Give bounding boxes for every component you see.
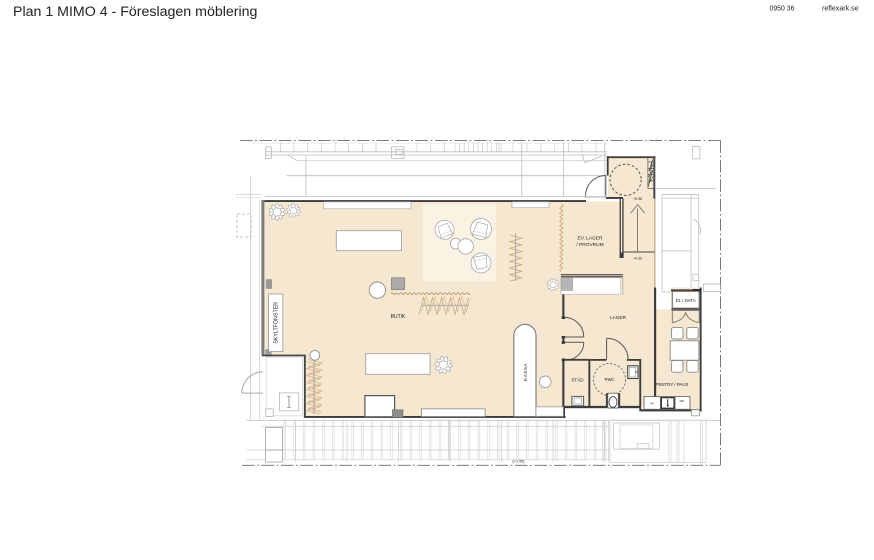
svg-text:STÄD: STÄD xyxy=(571,377,584,383)
svg-text:DM: DM xyxy=(680,399,685,403)
svg-text:PENTRY / PAUS: PENTRY / PAUS xyxy=(656,382,689,387)
svg-text:RWC: RWC xyxy=(605,377,615,382)
svg-text:BUTIK: BUTIK xyxy=(391,314,406,320)
svg-text:0950 36: 0950 36 xyxy=(770,6,795,13)
svg-text:+5.98: +5.98 xyxy=(633,197,642,201)
svg-text:EV. LAGER: EV. LAGER xyxy=(578,236,603,242)
svg-text:EL / DATA: EL / DATA xyxy=(676,298,696,303)
svg-text:/ PROVRUM: / PROVRUM xyxy=(576,242,603,248)
svg-text:KF: KF xyxy=(650,402,654,406)
svg-text:LAGER: LAGER xyxy=(610,315,627,321)
svg-text:KASSA: KASSA xyxy=(523,363,529,381)
svg-text:+4.39: +4.39 xyxy=(633,257,642,261)
svg-text:SKYLTFÖNSTER: SKYLTFÖNSTER xyxy=(273,302,280,344)
svg-text:(+1.55): (+1.55) xyxy=(512,460,525,464)
svg-text:Plan 1 MIMO 4 - Föreslagen möb: Plan 1 MIMO 4 - Föreslagen möblering xyxy=(13,4,257,20)
svg-text:reflexark.se: reflexark.se xyxy=(822,5,859,13)
